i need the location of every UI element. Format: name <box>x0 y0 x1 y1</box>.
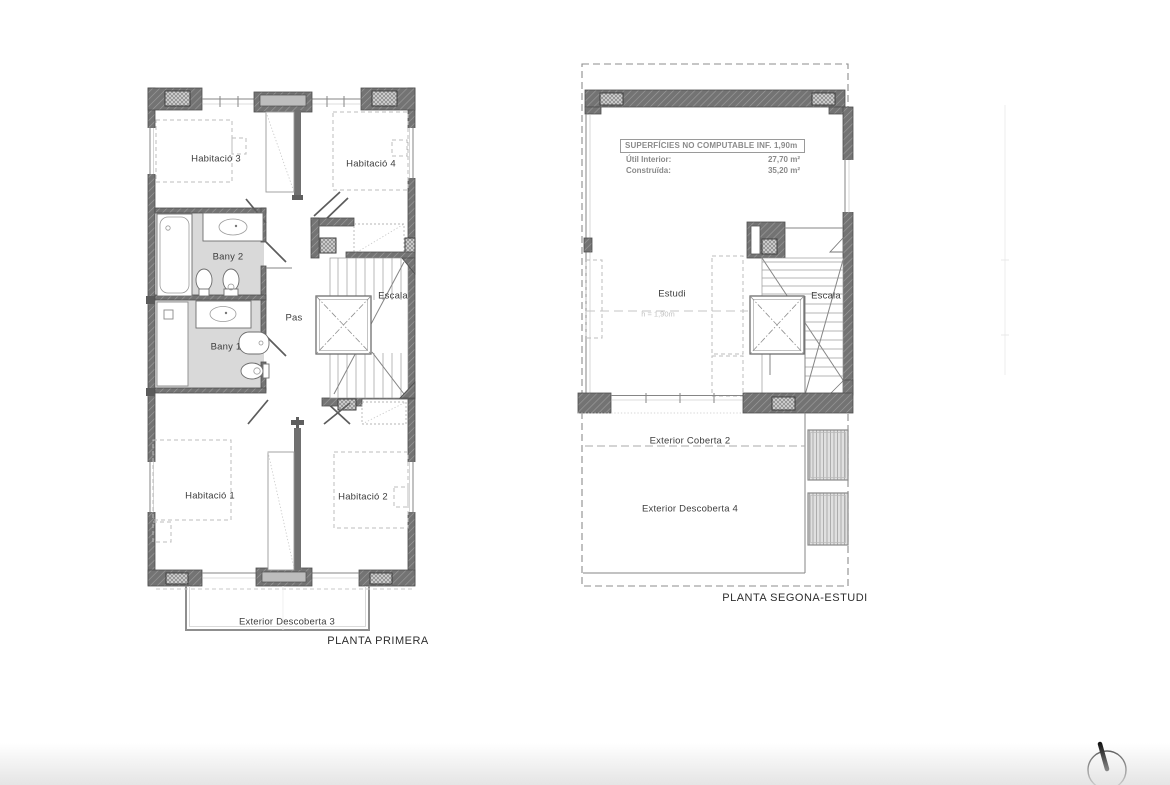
room-label-escala-1: Escala <box>378 291 408 302</box>
left-wall <box>584 114 592 393</box>
surfaces-row-label: Construïda: <box>626 166 671 175</box>
room-label-exterior-descoberta-4: Exterior Descoberta 4 <box>642 504 738 515</box>
surfaces-table-row: Útil Interior: 27,70 m² <box>620 153 805 164</box>
louver-panel <box>808 430 848 480</box>
bathtub <box>157 214 192 296</box>
room-label-exterior-coberta-2: Exterior Coberta 2 <box>650 436 731 447</box>
room-label-bany-1: Bany 1 <box>211 342 242 353</box>
closet <box>157 302 188 386</box>
room-label-escala-2: Escala <box>811 291 841 302</box>
surfaces-table-header: SUPERFÍCIES NO COMPUTABLE INF. 1,90m <box>620 139 805 153</box>
elevator <box>316 296 371 354</box>
surfaces-row-value: 35,20 m² <box>768 166 800 175</box>
toilet <box>223 269 239 296</box>
sink <box>203 213 263 241</box>
furniture-dashed <box>586 256 743 396</box>
room-label-bany-2: Bany 2 <box>213 252 244 263</box>
room-label-pas: Pas <box>286 313 303 324</box>
surfaces-row-label: Útil Interior: <box>626 155 671 164</box>
page-edge-line <box>1001 105 1009 375</box>
room-label-habitacio-4: Habitació 4 <box>346 159 396 170</box>
wardrobe-top <box>246 110 348 223</box>
room-label-habitacio-1: Habitació 1 <box>185 491 235 502</box>
bottom-wall <box>578 393 853 413</box>
height-note-label: h = 1,90m <box>641 310 675 319</box>
surfaces-row-value: 27,70 m² <box>768 155 800 164</box>
top-wall <box>585 90 845 114</box>
floorplans-drawing <box>0 0 1170 785</box>
right-wall <box>842 107 854 395</box>
room-label-exterior-descoberta-3: Exterior Descoberta 3 <box>239 617 335 628</box>
sink <box>196 301 251 328</box>
bathtub <box>239 332 269 354</box>
stair-vestibule-top <box>311 192 415 258</box>
room-label-habitacio-3: Habitació 3 <box>191 154 241 165</box>
plan-primera-title: PLANTA PRIMERA <box>327 635 429 647</box>
toilet <box>241 363 269 379</box>
wardrobe-bottom <box>248 400 350 570</box>
room-label-estudi: Estudi <box>658 289 686 300</box>
surfaces-table-row: Construïda: 35,20 m² <box>620 164 805 175</box>
surfaces-table: SUPERFÍCIES NO COMPUTABLE INF. 1,90m Úti… <box>620 139 805 175</box>
elevator <box>750 296 804 354</box>
bottom-fade <box>0 743 1170 785</box>
louver-panel <box>808 493 848 545</box>
plan-segona-title: PLANTA SEGONA-ESTUDI <box>722 592 868 604</box>
elevator-lobby <box>747 222 843 258</box>
room-label-habitacio-2: Habitació 2 <box>338 492 388 503</box>
floorplan-page: Habitació 3 Habitació 4 Bany 2 Pas Escal… <box>0 0 1170 785</box>
